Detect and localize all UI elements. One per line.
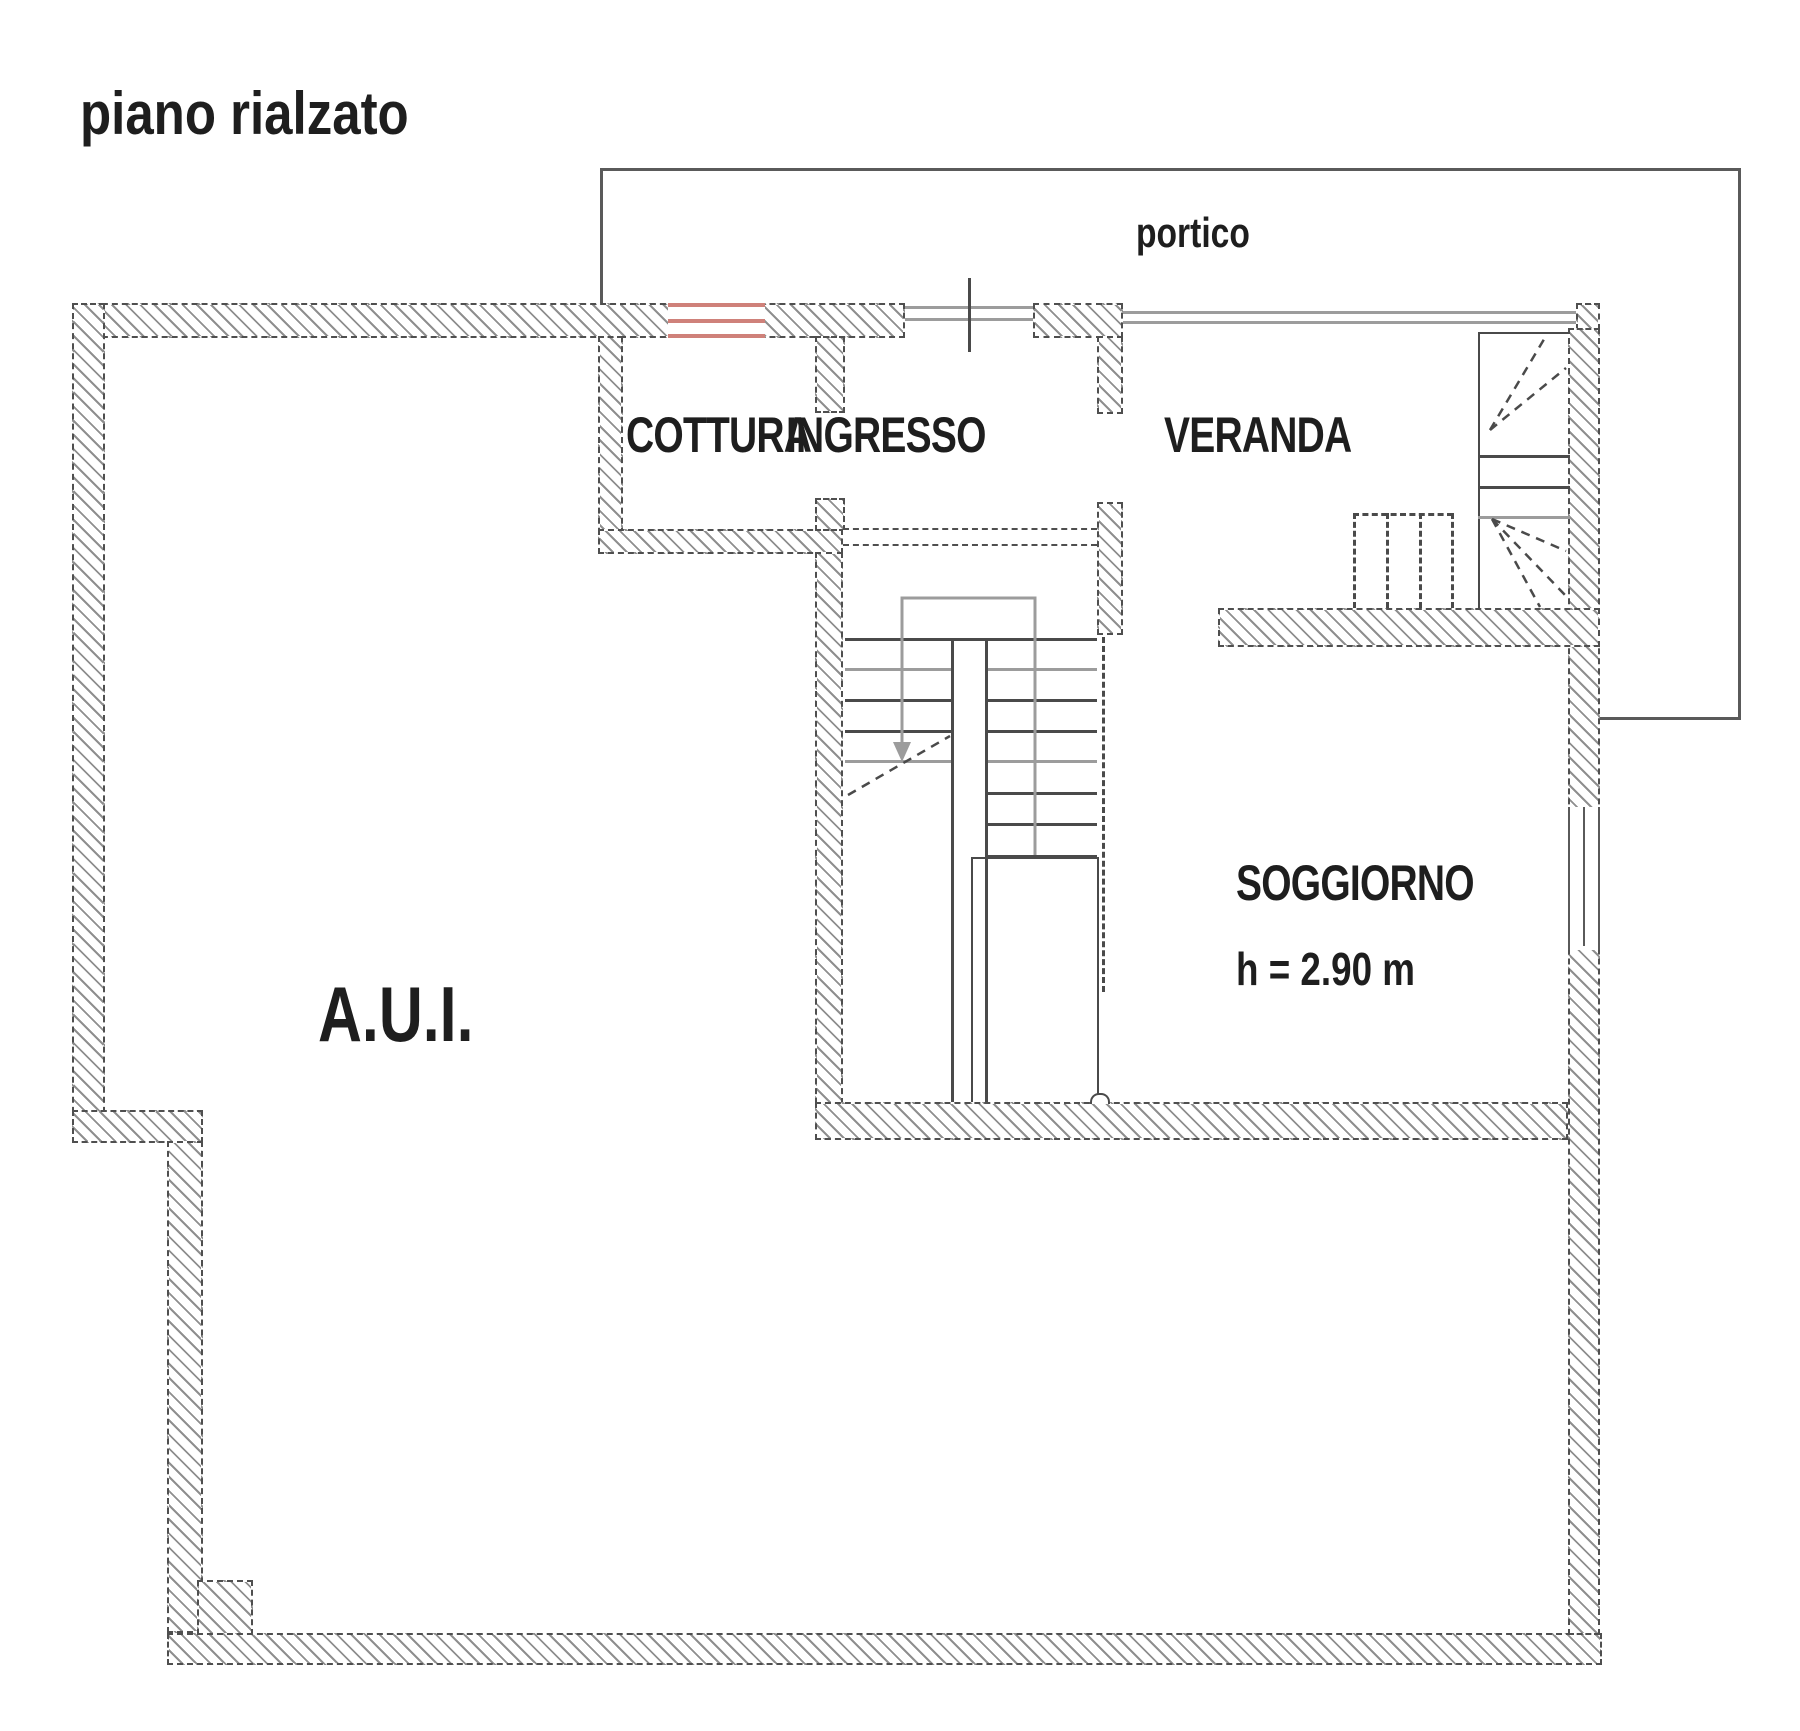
stair-right-tread-4 bbox=[988, 760, 1097, 763]
wall-left-lower bbox=[167, 1141, 203, 1633]
winder-stair-top-edge bbox=[1478, 332, 1570, 334]
portico-outline-top bbox=[600, 168, 1741, 171]
winder-fan-line-2 bbox=[1490, 368, 1566, 430]
label-aui: A.U.I. bbox=[318, 975, 473, 1053]
stair-landing-right-edge bbox=[1097, 857, 1099, 1102]
soggiorno-window-glass bbox=[1583, 807, 1585, 946]
stair-void-dashed-edge bbox=[1102, 637, 1105, 992]
stair-walkline bbox=[902, 598, 1035, 855]
winder-fan-line-5 bbox=[1492, 519, 1540, 607]
label-cottura: COTTURA bbox=[626, 410, 811, 460]
veranda-open-edge-bottom bbox=[1123, 321, 1576, 324]
wall-corner-block-ne bbox=[1576, 303, 1600, 330]
stair-right-tread-1 bbox=[988, 668, 1097, 671]
stair-right-tread-3 bbox=[988, 730, 1097, 733]
stair-void-edge-cap bbox=[1090, 1093, 1110, 1104]
portico-outline-bottom bbox=[1600, 717, 1741, 720]
wall-cottura-bottom bbox=[598, 529, 843, 554]
wall-cottura-ingresso-stub-top bbox=[815, 336, 845, 413]
label-veranda: VERANDA bbox=[1164, 410, 1351, 460]
veranda-step-line-4 bbox=[1451, 513, 1454, 608]
stair-cut-diagonal bbox=[848, 736, 950, 795]
stair-landing-left-edge bbox=[971, 857, 973, 1102]
veranda-steps-top-edge bbox=[1353, 513, 1453, 516]
stair-right-tread-6 bbox=[988, 823, 1097, 826]
wall-stair-left bbox=[815, 552, 843, 1104]
wall-veranda-soggiorno bbox=[1218, 608, 1600, 647]
winder-stair-tread-3 bbox=[1478, 516, 1570, 519]
cottura-window-icon bbox=[668, 303, 765, 338]
winder-stair-left-edge bbox=[1478, 332, 1480, 610]
page-title: piano rialzato bbox=[80, 84, 409, 144]
veranda-step-line-3 bbox=[1419, 513, 1422, 608]
veranda-open-edge-top bbox=[1123, 311, 1576, 314]
wall-right bbox=[1568, 328, 1600, 1635]
stair-right-tread-5 bbox=[988, 792, 1097, 795]
winder-stair-tread-2 bbox=[1478, 486, 1570, 489]
floor-plan: piano rialzato portico COTTURA INGRESSO … bbox=[0, 0, 1800, 1731]
wall-pier-ingresso-veranda bbox=[1033, 303, 1123, 338]
stair-right-tread-2 bbox=[988, 699, 1097, 702]
stair-top-riser bbox=[845, 638, 1097, 641]
stair-walkline-arrowhead-icon bbox=[893, 742, 911, 762]
wall-stair-right bbox=[1097, 502, 1123, 635]
wall-cottura-left bbox=[598, 336, 623, 554]
winder-fan-line-4 bbox=[1492, 519, 1566, 596]
stair-left-tread-3 bbox=[845, 730, 952, 733]
winder-fan-line-3 bbox=[1492, 519, 1566, 551]
stair-divider-right-line bbox=[985, 638, 988, 1102]
detail-lines-layer bbox=[0, 0, 1800, 1731]
stair-left-tread-4 bbox=[845, 760, 952, 763]
label-soggiorno: SOGGIORNO bbox=[1236, 858, 1474, 908]
winder-fan-line-1 bbox=[1490, 336, 1546, 430]
cottura-window-midline bbox=[668, 319, 765, 323]
wall-left-jog bbox=[72, 1110, 203, 1143]
wall-stub-ingresso-veranda bbox=[1097, 336, 1123, 414]
wall-left bbox=[72, 303, 105, 1143]
entry-door-tick bbox=[968, 278, 971, 352]
stair-left-tread-1 bbox=[845, 668, 952, 671]
label-portico: portico bbox=[1136, 212, 1250, 254]
portico-outline-left bbox=[600, 168, 603, 305]
veranda-step-line-1 bbox=[1353, 513, 1356, 608]
wall-below-stair-soggiorno bbox=[815, 1102, 1568, 1140]
wall-left-step bbox=[197, 1580, 253, 1635]
label-ingresso: INGRESSO bbox=[786, 410, 986, 460]
label-soggiorno-height: h = 2.90 m bbox=[1236, 946, 1415, 992]
stair-landing-top-edge bbox=[971, 857, 1099, 859]
winder-stair-tread-1 bbox=[1478, 455, 1570, 458]
wall-bottom bbox=[167, 1633, 1602, 1665]
soggiorno-window-icon bbox=[1568, 807, 1600, 950]
stair-divider-left-line bbox=[951, 638, 954, 1102]
portico-outline-right bbox=[1738, 168, 1741, 720]
wall-top bbox=[72, 303, 905, 338]
stair-left-tread-2 bbox=[845, 699, 952, 702]
stair-overhead-band bbox=[843, 528, 1097, 546]
wall-cottura-ingresso-stub-bottom bbox=[815, 498, 845, 531]
veranda-step-line-2 bbox=[1386, 513, 1389, 608]
